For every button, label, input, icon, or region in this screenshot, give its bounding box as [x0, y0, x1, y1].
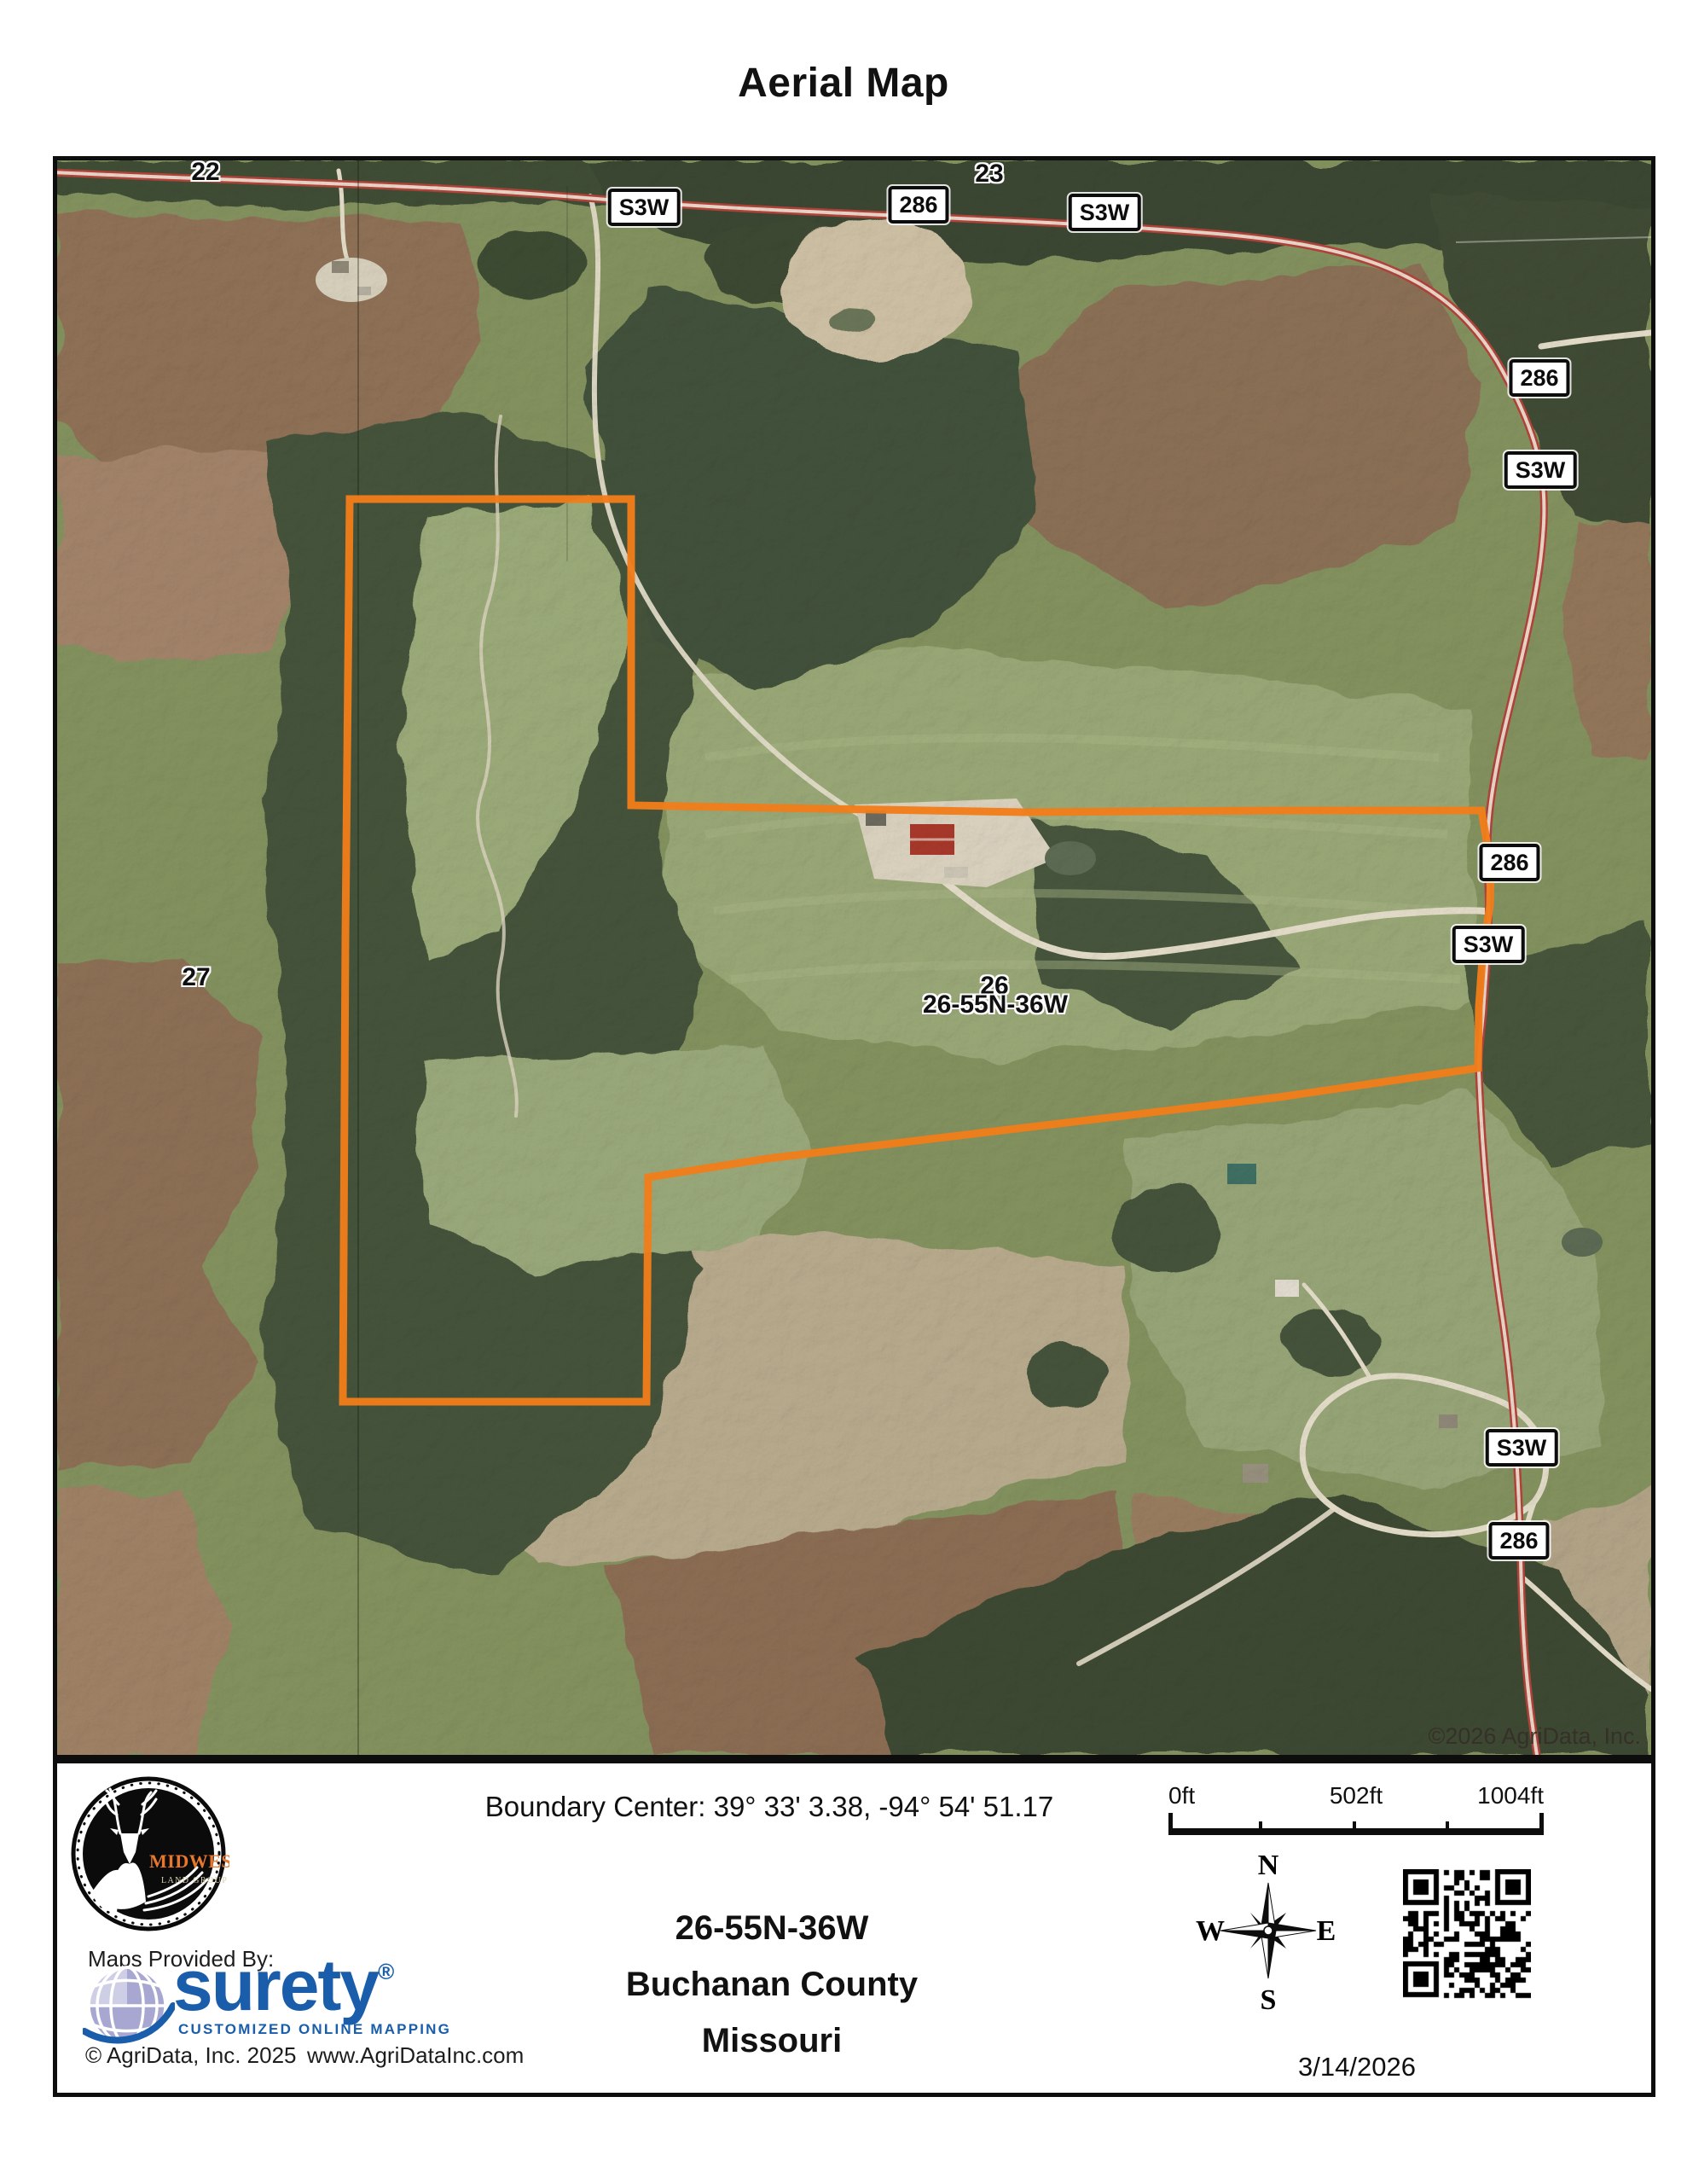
- page-title: Aerial Map: [0, 60, 1687, 107]
- map-labels: 22S3W28623S3W286S3W286S3W272626-55N-36WS…: [57, 160, 1651, 1755]
- brand-name: MIDWEST: [149, 1850, 229, 1872]
- surety-tagline: CUSTOMIZED ONLINE MAPPING: [178, 2021, 451, 2038]
- globe-icon: [83, 1963, 175, 2048]
- section-label-22: 22: [191, 158, 219, 187]
- map-date: 3/14/2026: [1298, 2052, 1416, 2082]
- route-badge-s3w: S3W: [1069, 194, 1141, 231]
- compass-s: S: [1261, 1984, 1277, 2016]
- page: Aerial Map: [0, 0, 1687, 2184]
- agridata-website: www.AgriDataInc.com: [307, 2042, 524, 2069]
- compass-e: E: [1317, 1915, 1336, 1947]
- surety-wordmark: surety®: [173, 1944, 394, 2027]
- brand-sub: LAND GROUP: [161, 1876, 228, 1885]
- section-label-23: 23: [975, 160, 1003, 189]
- county: Buchanan County: [626, 1956, 918, 2013]
- qr-code: [1403, 1869, 1531, 1999]
- agridata-copyright: © AgriData, Inc. 2025: [85, 2042, 297, 2068]
- midwest-land-group-logo: MIDWEST LAND GROUP: [67, 1769, 229, 1939]
- agridata-copyright-row: © AgriData, Inc. 2025 www.AgriDataInc.co…: [85, 2042, 512, 2069]
- footer: MIDWEST LAND GROUP Maps Provided By:: [53, 1759, 1655, 2097]
- route-badge-286: 286: [888, 186, 948, 224]
- route-badge-286: 286: [1509, 359, 1569, 397]
- state: Missouri: [626, 2013, 918, 2069]
- route-badge-286: 286: [1479, 844, 1539, 881]
- route-badge-s3w: S3W: [1452, 926, 1525, 963]
- township-range: 26-55N-36W: [626, 1900, 918, 1956]
- scale-label-mid: 502ft: [1330, 1782, 1383, 1809]
- surety-logo: surety® CUSTOMIZED ONLINE MAPPING: [83, 1966, 441, 2040]
- aerial-map: 22S3W28623S3W286S3W286S3W272626-55N-36WS…: [53, 156, 1655, 1759]
- scale-label-0: 0ft: [1168, 1782, 1195, 1809]
- route-badge-s3w: S3W: [1486, 1429, 1558, 1467]
- scale-label-max: 1004ft: [1477, 1782, 1544, 1809]
- registered-mark: ®: [378, 1959, 394, 1984]
- scale-bar: [1168, 1811, 1544, 1835]
- route-badge-286: 286: [1488, 1522, 1549, 1560]
- map-copyright: ©2026 AgriData, Inc.: [1428, 1723, 1641, 1750]
- location-block: 26-55N-36W Buchanan County Missouri: [626, 1900, 918, 2069]
- compass-w: W: [1196, 1915, 1225, 1947]
- section-label-26-55n-36w: 26-55N-36W: [923, 990, 1068, 1019]
- compass-rose-icon: N E S W: [1191, 1842, 1345, 2021]
- route-badge-s3w: S3W: [608, 189, 681, 226]
- section-label-27: 27: [182, 963, 210, 992]
- route-badge-s3w: S3W: [1504, 451, 1577, 489]
- compass-n: N: [1258, 1850, 1279, 1881]
- boundary-center-coordinates: Boundary Center: 39° 33' 3.38, -94° 54' …: [485, 1791, 1053, 1823]
